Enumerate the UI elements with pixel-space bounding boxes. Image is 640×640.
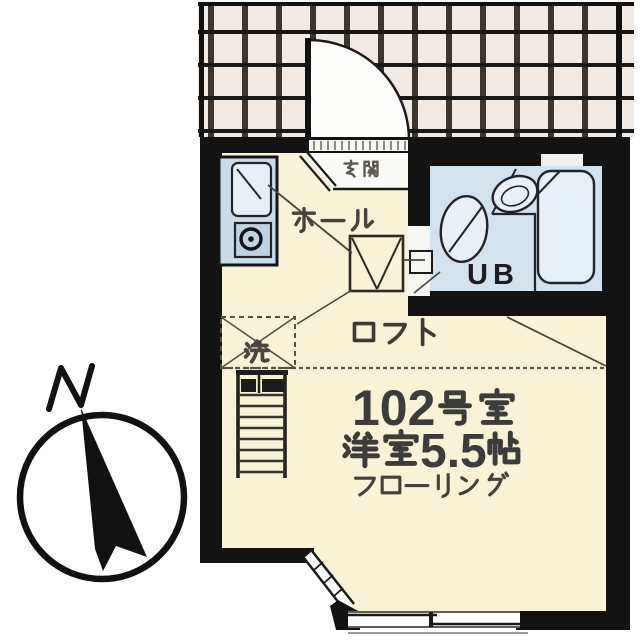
svg-text:UB: UB — [467, 259, 519, 291]
svg-text:5.5: 5.5 — [420, 425, 487, 478]
